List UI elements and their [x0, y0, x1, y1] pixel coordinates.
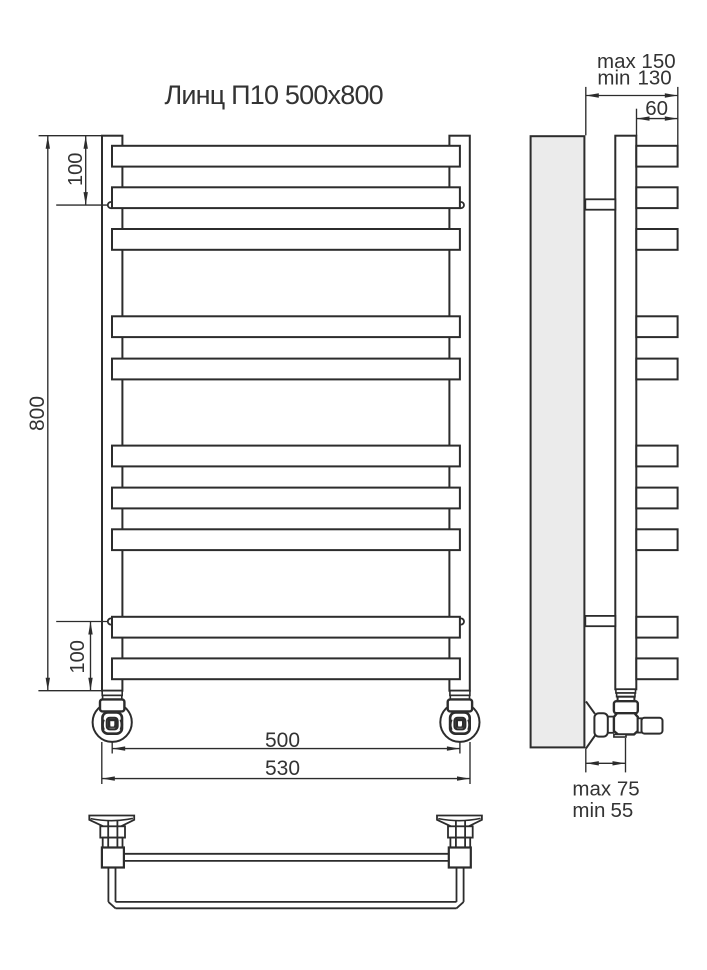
svg-text:800: 800: [26, 396, 49, 431]
svg-text:Линц П10 500x800: Линц П10 500x800: [164, 80, 382, 110]
svg-text:530: 530: [265, 757, 300, 780]
svg-text:60: 60: [645, 97, 668, 120]
svg-text:min: min: [597, 67, 630, 90]
svg-text:130: 130: [638, 67, 672, 90]
svg-text:100: 100: [67, 640, 89, 673]
svg-text:max 75: max 75: [572, 778, 639, 801]
svg-text:500: 500: [265, 729, 300, 752]
svg-text:min: min: [572, 799, 605, 822]
svg-text:100: 100: [65, 153, 87, 186]
svg-text:55: 55: [611, 799, 634, 822]
